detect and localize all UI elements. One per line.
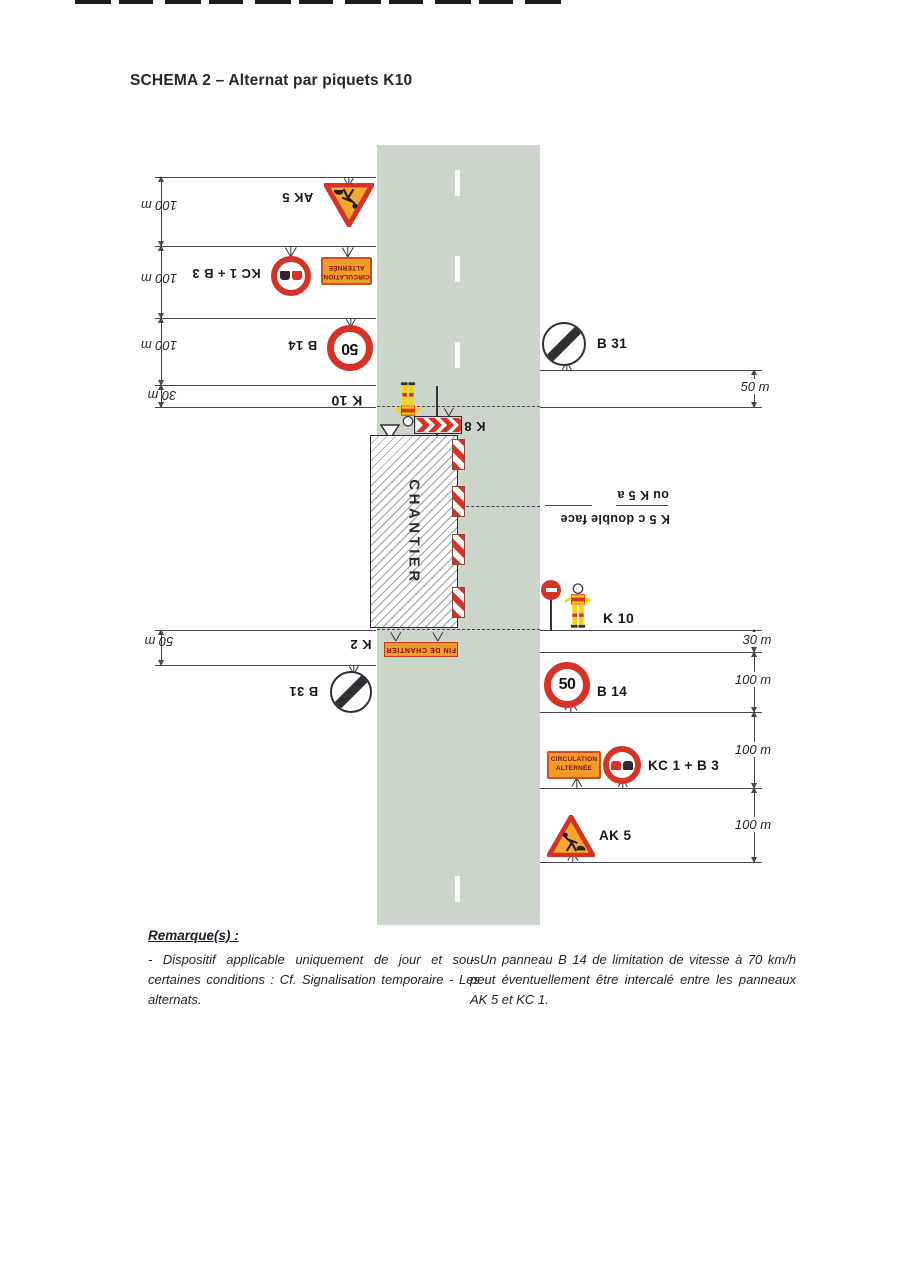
distance-label: 100 m <box>134 338 184 353</box>
k10-flagger-right <box>562 583 594 631</box>
road-centerline-dash <box>455 170 460 196</box>
distance-label: 100 m <box>134 271 184 286</box>
sign-tripod-legs <box>386 631 406 641</box>
dashed-cross-line <box>456 506 540 507</box>
sign-tripod-legs <box>330 246 366 257</box>
road-centerline-dash <box>455 342 460 368</box>
chantier-zone: CHANTIER <box>370 435 458 628</box>
measure-line <box>540 407 762 408</box>
chantier-label: CHANTIER <box>406 479 423 585</box>
measure-line <box>155 630 376 631</box>
k2-label: K 2 <box>350 637 371 652</box>
kc1-panel-left: CIRCULATION ALTERNÉE <box>321 257 372 285</box>
distance-label: 50 m <box>729 379 781 394</box>
diagonal-bar-icon <box>332 673 371 712</box>
k5c-label: K 5 c double face <box>550 512 680 526</box>
measure-line <box>540 712 762 713</box>
b31-sign-right <box>542 322 586 366</box>
dashed-cross-line <box>377 629 540 630</box>
diagonal-bar-icon <box>544 324 584 364</box>
ak5-label-right: AK 5 <box>599 828 631 843</box>
b3-sign-right <box>603 746 641 784</box>
b31-sign-left <box>330 671 372 713</box>
roadworks-icon <box>324 183 374 227</box>
b14-sign-right: 50 <box>544 662 590 708</box>
k2-panel: FIN DE CHANTIER <box>384 642 458 657</box>
k5c-post-icon <box>452 534 465 565</box>
distance-label: 30 m <box>731 632 783 647</box>
distance-label: 30 m <box>137 388 187 403</box>
no-overtaking-icon <box>280 272 302 281</box>
measure-line <box>540 862 762 863</box>
measure-line <box>540 652 762 653</box>
k5c-leader-line <box>616 505 668 506</box>
ak5-sign-left <box>324 183 374 227</box>
distance-label: 100 m <box>727 672 779 687</box>
scan-edge-artifact <box>75 0 562 4</box>
b31-label-right: B 31 <box>597 336 627 351</box>
k5c-post-icon <box>452 587 465 618</box>
b14-label-right: B 14 <box>597 684 627 699</box>
no-overtaking-icon <box>611 761 633 770</box>
distance-label: 100 m <box>727 742 779 757</box>
page-title: SCHEMA 2 – Alternat par piquets K10 <box>130 72 412 90</box>
remarks-left: - Dispositif applicable uniquement de jo… <box>148 950 480 1009</box>
ak5-sign-right <box>547 815 595 857</box>
b14-label-left: B 14 <box>288 338 317 353</box>
k10-paddle-icon <box>541 580 561 600</box>
ak5-label-left: AK 5 <box>282 190 313 205</box>
kc1-panel-right: CIRCULATION ALTERNÉE <box>547 751 601 779</box>
kc1b3-label-right: KC 1 + B 3 <box>648 758 719 773</box>
flagger-icon <box>562 583 594 631</box>
measure-line <box>540 788 762 789</box>
sign-tripod-legs <box>428 631 448 641</box>
measure-line <box>155 385 376 386</box>
k8-label: K 8 <box>464 419 485 434</box>
k10-label-right: K 10 <box>603 610 634 626</box>
k5c-post-icon <box>452 439 465 470</box>
remarks-heading: Remarque(s) : <box>148 928 239 943</box>
road-centerline-dash <box>455 256 460 282</box>
roadworks-icon <box>547 815 595 857</box>
b14-sign-left: 50 <box>327 325 373 371</box>
distance-label: 50 m <box>134 634 184 649</box>
road-centerline-dash <box>455 876 460 902</box>
b3-sign-left <box>271 256 311 296</box>
remarks-right: - Un panneau B 14 de limitation de vites… <box>470 950 796 1009</box>
k5c-alt-label: ou K 5 a <box>612 488 674 502</box>
distance-label: 100 m <box>727 817 779 832</box>
distance-label: 100 m <box>134 198 184 213</box>
chevron-barrier-icon <box>414 416 462 434</box>
sign-tripod-legs <box>440 407 458 416</box>
k5c-post-icon <box>452 486 465 517</box>
k8-barrier <box>414 416 462 434</box>
sign-tripod-legs <box>559 778 595 788</box>
k5c-leader-line <box>545 505 592 506</box>
b31-label-left: B 31 <box>289 684 318 699</box>
k10-label-left: K 10 <box>331 393 362 409</box>
kc1b3-label-left: KC 1 + B 3 <box>192 266 261 281</box>
scanned-schema-page: SCHEMA 2 – Alternat par piquets K10 100 … <box>0 0 900 1274</box>
